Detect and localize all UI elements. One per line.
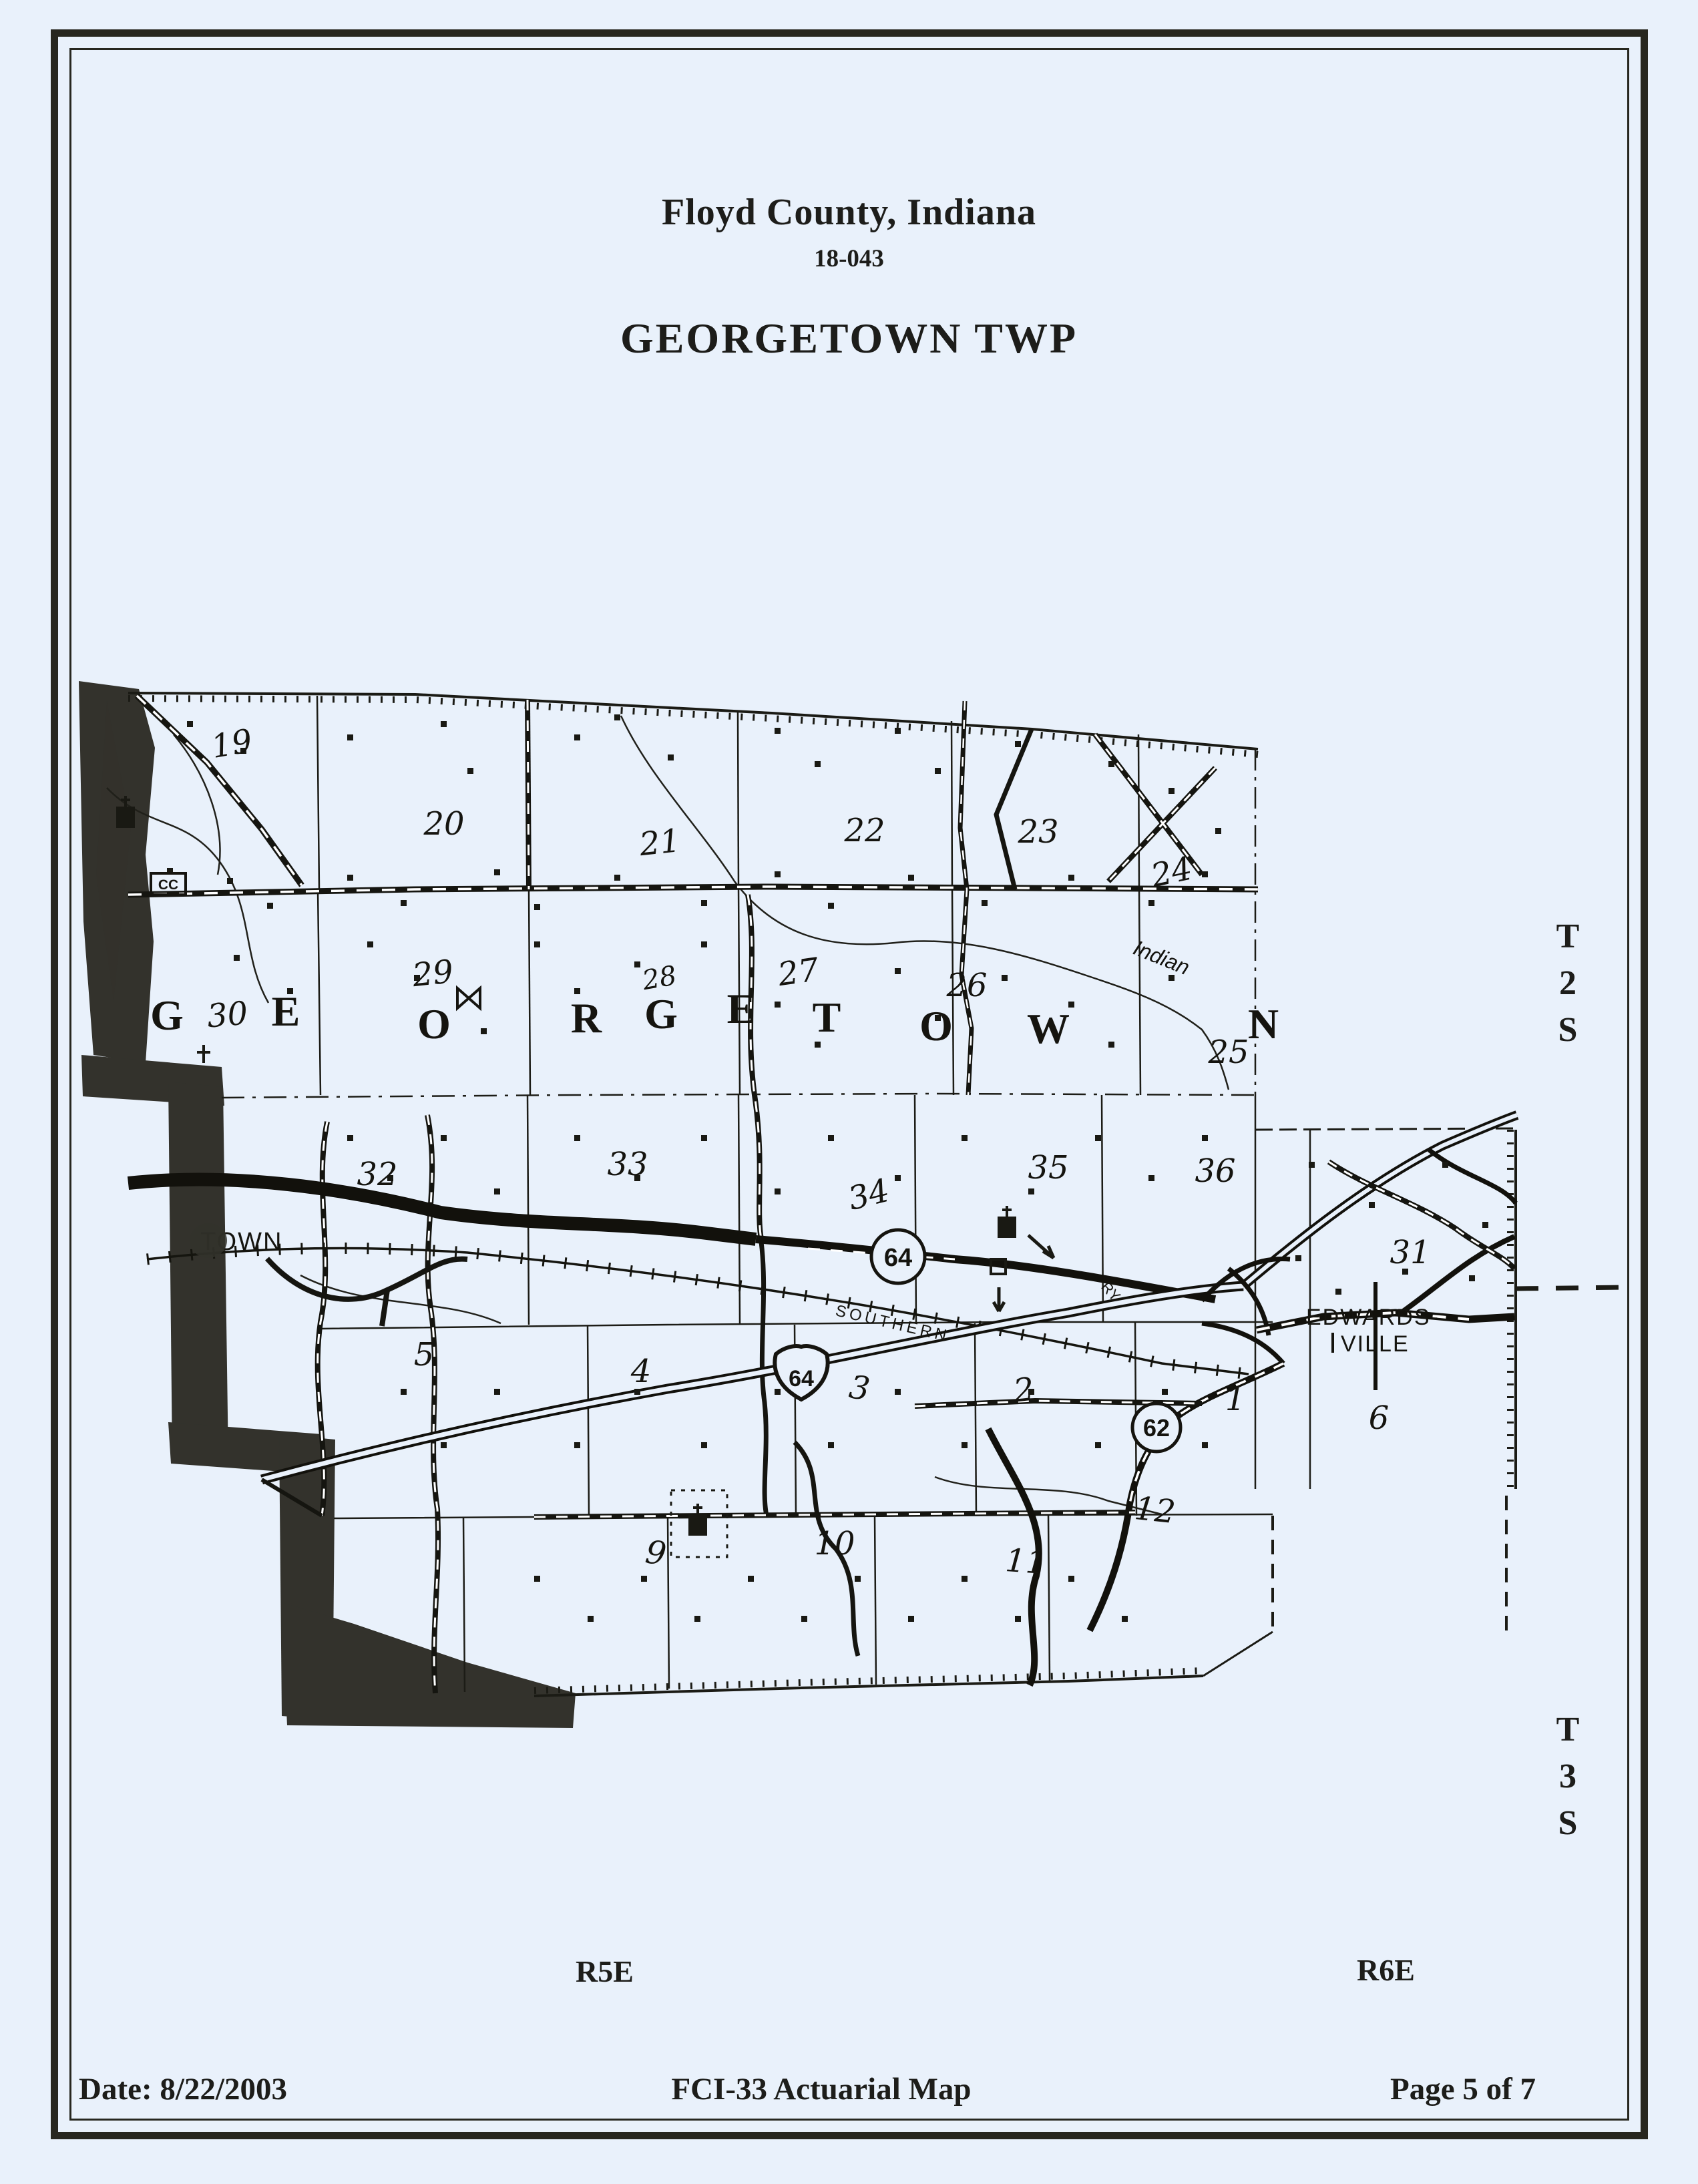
interstate-64-number: 64 [789,1366,814,1391]
road-interstate-64 [262,1286,1243,1480]
township-boundary-band [79,681,576,1728]
section-label: 33 [607,1146,648,1183]
section-label: 19 [208,722,255,766]
section-label: 29 [410,953,455,994]
range-label-r5e: R5E [576,1954,634,1989]
georgetown-letter: N [1248,1000,1279,1048]
section-label: 35 [1028,1149,1068,1186]
georgetown-letter: E [272,988,300,1035]
section-label: 11 [1004,1542,1048,1582]
georgetown-letter: O [919,1002,953,1050]
page-number-label: Page 5 of 7 [1390,2071,1536,2107]
section-label: 10 [814,1525,855,1562]
section-label: 20 [423,805,464,843]
section-label: 27 [775,951,822,994]
georgetown-letter: W [1027,1005,1070,1052]
section-label: 25 [1207,1034,1249,1071]
section-label: 3 [847,1368,872,1408]
section-label: 5 [414,1336,435,1373]
section-label: 1 [1225,1381,1246,1418]
state-road-62-number: 62 [1143,1414,1170,1442]
georgetown-letter: T [813,994,841,1041]
section-label: 26 [945,967,987,1004]
georgetown-letter: G [150,992,184,1039]
georgetown-letter: R [571,994,602,1042]
section-label: 32 [357,1156,397,1193]
scanned-actuarial-map-page: { "header": { "title": "Floyd County, In… [0,0,1698,2184]
range-label-r6e: R6E [1357,1952,1415,1988]
section-label: 6 [1369,1399,1390,1437]
section-label: 36 [1195,1152,1235,1190]
township-map: 64 62 64 19 20 21 22 23 24 25 26 27 28 2… [67,654,1629,1736]
georgetown-letter: O [417,1000,451,1048]
page-title: Floyd County, Indiana [0,191,1698,234]
section-numbers: 19 20 21 22 23 24 25 26 27 28 29 30 31 3… [206,722,1431,1582]
section-label: 2 [1011,1371,1036,1410]
georgetown-letter: G [644,990,678,1038]
georgetown-letter: E [727,985,756,1032]
map-code: 18-043 [0,244,1698,273]
township-title: GEORGETOWN TWP [0,314,1698,363]
section-label: 12 [1132,1490,1177,1531]
town-label-edwardsville-line2: VILLE [1341,1331,1410,1357]
section-label: 34 [845,1172,893,1218]
state-road-64-number: 64 [884,1244,912,1272]
section-label: 31 [1390,1234,1430,1271]
corner-marker-cc: CC [158,877,178,893]
section-label: 9 [643,1533,668,1573]
section-label: 22 [843,812,885,849]
town-label-edwardsville-line1: EDWARDS- [1306,1305,1440,1330]
section-label: 4 [630,1353,652,1390]
section-label: 30 [206,995,250,1036]
section-label: 21 [637,822,682,863]
section-label: 23 [1017,813,1058,851]
bowtie-symbol [457,988,480,1008]
